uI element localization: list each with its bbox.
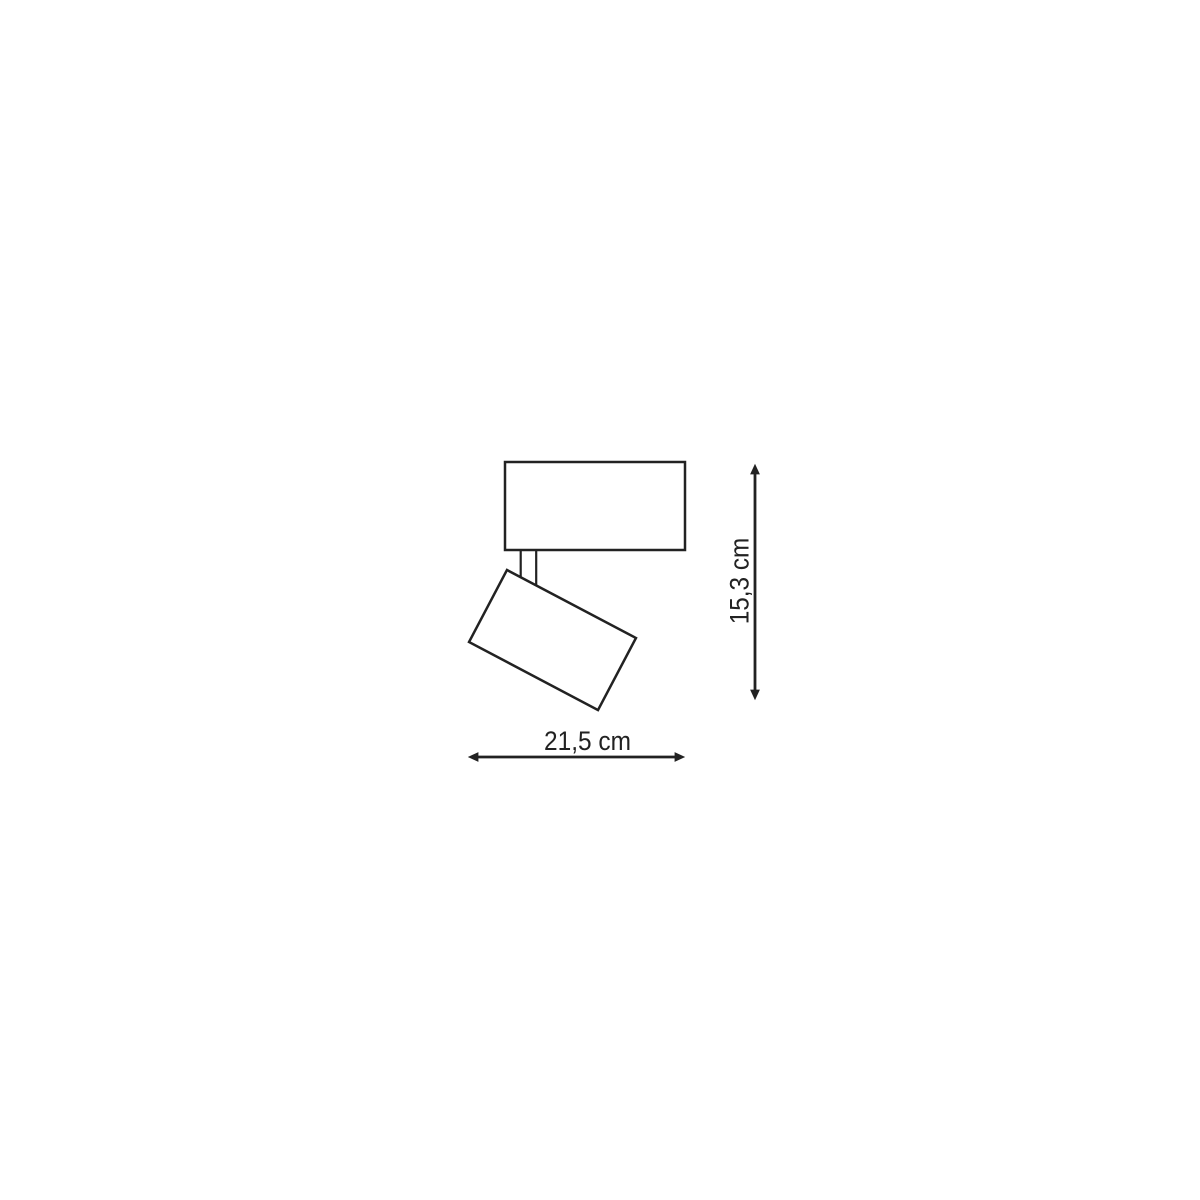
svg-text:21,5 cm: 21,5 cm xyxy=(544,726,631,756)
svg-text:15,3 cm: 15,3 cm xyxy=(725,538,755,625)
